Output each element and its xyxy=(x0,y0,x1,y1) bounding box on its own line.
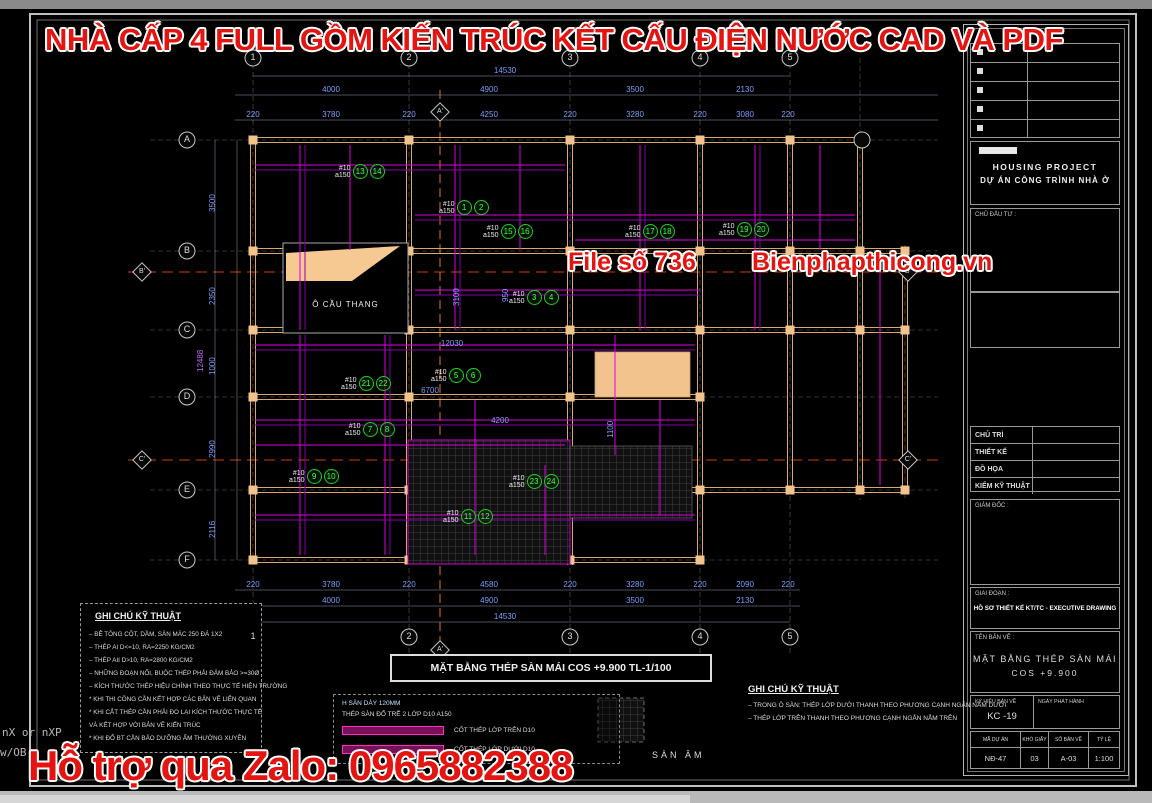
section-lines xyxy=(128,90,938,658)
drawing-title-box: MẶT BẰNG THÉP SÀN MÁI COS +9.900 TL-1/10… xyxy=(390,654,712,682)
rebar-spacing: a150 xyxy=(345,430,361,437)
rebar-callout: #10 a150 3 4 xyxy=(509,290,559,305)
dim-label: 12030 xyxy=(441,339,463,348)
dim-label: 3500 xyxy=(626,596,644,605)
dim-label: 6700 xyxy=(421,386,439,395)
footer-value: 1:100 xyxy=(1089,748,1119,768)
grid-row-bubble: F xyxy=(179,554,195,564)
dim-label: 4000 xyxy=(322,596,340,605)
dim-label: 220 xyxy=(693,580,706,589)
stair-opening-label: Ô CẦU THANG xyxy=(283,300,408,309)
bar-mark-number: 2 xyxy=(474,200,489,215)
section-bubble: A' xyxy=(432,646,448,653)
sheet-name-label: TÊN BẢN VẼ : xyxy=(975,635,1014,641)
rebar-spacing: a150 xyxy=(719,230,735,237)
dim-label: 4580 xyxy=(480,580,498,589)
revision-marker xyxy=(977,106,983,112)
dim-label: 220 xyxy=(563,110,576,119)
bar-mark-number: 13 xyxy=(353,164,368,179)
section-bubble: A' xyxy=(432,108,448,115)
footer-table: MÃ DỰ ÁN NĐ-47 KHỔ GIẤY 03 SỐ BẢN VẼ A-0… xyxy=(970,731,1120,769)
footer-value: 03 xyxy=(1021,748,1048,768)
rebar-size: #10 xyxy=(435,369,447,376)
bar-mark-number: 15 xyxy=(501,224,516,239)
bar-mark-number: 24 xyxy=(544,474,559,489)
director-label: GIÁM ĐỐC : xyxy=(975,503,1009,509)
bar-mark-number: 1 xyxy=(457,200,472,215)
dim-label: 3280 xyxy=(626,110,644,119)
rebar-callout: #10 a150 15 16 xyxy=(483,224,533,239)
rebar-callout: #10 a150 1 2 xyxy=(439,200,489,215)
note-line: * KHI CẮT THÉP CẦN PHẢI ĐO LẠI KÍCH THƯỚ… xyxy=(89,706,287,719)
rebar-callout: #10 a150 13 14 xyxy=(335,164,385,179)
dim-label: 3100 xyxy=(452,288,461,306)
slab-patch xyxy=(595,352,690,397)
footer-label: MÃ DỰ ÁN xyxy=(971,732,1020,748)
drawing-title: MẶT BẰNG THÉP SÀN MÁI COS +9.900 TL-1/10… xyxy=(430,662,671,674)
rebar-size: #10 xyxy=(513,291,525,298)
role-label: KIỂM KỸ THUẬT xyxy=(971,478,1033,494)
terminal-text: nX or nXP xyxy=(2,726,62,739)
rebar-callout: #10 a150 9 10 xyxy=(289,469,339,484)
grid-row-bubble: B xyxy=(179,245,195,255)
rebar-size: #10 xyxy=(345,377,357,384)
bar-mark-number: 12 xyxy=(478,509,493,524)
revision-marker xyxy=(977,68,983,74)
bar-mark-number: 7 xyxy=(363,422,378,437)
dim-label: 2350 xyxy=(208,287,217,305)
footer-label: TỶ LỆ xyxy=(1089,732,1119,748)
rebar-callout: #10 a150 17 18 xyxy=(625,224,675,239)
rebar-callout: #10 a150 21 22 xyxy=(341,376,391,391)
role-row: THIẾT KẾ xyxy=(971,444,1119,461)
top-window-strip xyxy=(0,0,1152,9)
footer-cell: KHỔ GIẤY 03 xyxy=(1021,732,1049,768)
bar-mark-number: 21 xyxy=(359,376,374,391)
rebar-size: #10 xyxy=(487,225,499,232)
rebar-callout: #10 a150 19 20 xyxy=(719,222,769,237)
dim-label: 3500 xyxy=(208,194,217,212)
footer-cell: SỐ BẢN VẼ A-03 xyxy=(1049,732,1089,768)
dimension-lines xyxy=(215,76,938,622)
stage-label: GIAI ĐOẠN : xyxy=(975,591,1009,597)
legend-swatch-top-layer xyxy=(342,726,444,735)
promo-top-banner: NHÀ CẤP 4 FULL GỒM KIẾN TRÚC KẾT CẤU ĐIỆ… xyxy=(45,22,1063,58)
legend-label: CỐT THÉP LỚP TRÊN D10 xyxy=(454,727,535,734)
dim-label: 2116 xyxy=(208,521,217,538)
revision-marker xyxy=(977,125,983,131)
rebar-size: #10 xyxy=(629,225,641,232)
stage-section: GIAI ĐOẠN : HỒ SƠ THIẾT KẾ KT/TC - EXECU… xyxy=(970,587,1120,629)
footer-label: SỐ BẢN VẼ xyxy=(1049,732,1088,748)
consultant-section xyxy=(970,292,1120,348)
grid-row-bubble: A xyxy=(179,134,195,144)
rebar-size: #10 xyxy=(723,223,735,230)
revision-row xyxy=(971,63,1119,82)
technical-notes-left: GHI CHÚ KỸ THUẬT – BÊ TÔNG CỘT, DẦM, SÀN… xyxy=(80,603,262,753)
bar-mark-number: 11 xyxy=(461,509,476,524)
director-section: GIÁM ĐỐC : xyxy=(970,499,1120,585)
promo-file-number: File số 736 xyxy=(568,248,696,277)
role-label: ĐỒ HỌA xyxy=(971,461,1033,477)
role-row: KIỂM KỸ THUẬT xyxy=(971,478,1119,494)
bar-mark-number: 3 xyxy=(527,290,542,305)
grid-col-bubble: 4 xyxy=(692,631,708,641)
section-bubble: C' xyxy=(134,456,150,463)
rebar-callout: #10 a150 11 12 xyxy=(443,509,493,524)
rebar-callout: #10 a150 5 6 xyxy=(431,368,481,383)
rebar-size: #10 xyxy=(293,470,305,477)
role-label: CHỦ TRÌ xyxy=(971,427,1033,443)
stair-opening xyxy=(283,243,408,333)
stage-value: HỒ SƠ THIẾT KẾ KT/TC - EXECUTIVE DRAWING xyxy=(971,605,1119,612)
dim-label: 4200 xyxy=(491,416,509,425)
bar-mark-number: 20 xyxy=(754,222,769,237)
bar-mark-number: 4 xyxy=(544,290,559,305)
notes-title: GHI CHÚ KỸ THUẬT xyxy=(748,684,1006,695)
dim-label: 220 xyxy=(693,110,706,119)
rebar-size: #10 xyxy=(513,475,525,482)
rebar-spacing: a150 xyxy=(431,376,447,383)
footer-cell: TỶ LỆ 1:100 xyxy=(1089,732,1119,768)
legend-line: THÉP SÀN ĐỔ TRỄ 2 LỚP D10 A150 xyxy=(342,711,452,718)
bar-mark-number: 17 xyxy=(643,224,658,239)
rebar-spacing: a150 xyxy=(443,517,459,524)
bar-mark-number: 23 xyxy=(527,474,542,489)
rebar-spacing: a150 xyxy=(439,208,455,215)
dim-label: 2130 xyxy=(736,85,754,94)
rebar-spacing: a150 xyxy=(625,232,641,239)
dim-label: 14530 xyxy=(494,66,516,75)
title-block: HOUSING PROJECT DỰ ÁN CÔNG TRÌNH NHÀ Ở C… xyxy=(963,24,1129,776)
bar-mark-number: 14 xyxy=(370,164,385,179)
revision-marker xyxy=(977,87,983,93)
dim-label: 3280 xyxy=(626,580,644,589)
bar-mark-number: 16 xyxy=(518,224,533,239)
project-name-en: HOUSING PROJECT xyxy=(971,162,1119,172)
dim-label: 12488 xyxy=(196,350,205,372)
dim-label: 1100 xyxy=(606,421,615,438)
dim-label: 2990 xyxy=(208,440,217,458)
dim-label: 220 xyxy=(402,580,415,589)
note-line: * KHI THI CÔNG CẦN KẾT HỢP CÁC BẢN VẼ LI… xyxy=(89,693,287,706)
rebar-spacing: a150 xyxy=(509,482,525,489)
footer-value: A-03 xyxy=(1049,748,1088,768)
cad-viewer-screenshot: 1 2 3 4 5 1 2 3 4 5 A B C D E F A' A' B'… xyxy=(0,0,1152,803)
dim-label: 220 xyxy=(781,110,794,119)
dim-label: 3780 xyxy=(322,580,340,589)
grid-col-bubble: 5 xyxy=(782,631,798,641)
grid-col-bubble: 2 xyxy=(401,631,417,641)
note-line: – THÉP AI D<=10, RA=2250 KG/CM2 xyxy=(89,641,287,654)
terminal-text: w/OB xyxy=(0,746,27,759)
bar-mark-number: 22 xyxy=(376,376,391,391)
sunken-slab-label: SÀN ÂM xyxy=(652,750,705,760)
footer-cell: MÃ DỰ ÁN NĐ-47 xyxy=(971,732,1021,768)
grid-row-bubble: C xyxy=(179,324,195,334)
issue-date-cell: NGÀY PHÁT HÀNH xyxy=(1034,696,1119,728)
note-line: – NHỮNG ĐOẠN NỐI, BUỘC THÉP PHẢI ĐẢM BẢO… xyxy=(89,667,287,680)
dim-label: 220 xyxy=(402,110,415,119)
dim-label: 2130 xyxy=(736,596,754,605)
project-name-vi: DỰ ÁN CÔNG TRÌNH NHÀ Ở xyxy=(971,176,1119,185)
footer-value: NĐ-47 xyxy=(971,748,1020,768)
dim-label: 220 xyxy=(781,580,794,589)
bar-mark-number: 18 xyxy=(660,224,675,239)
dim-label: 4900 xyxy=(480,596,498,605)
notes-title: GHI CHÚ KỸ THUẬT xyxy=(95,611,181,621)
rebar-spacing: a150 xyxy=(483,232,499,239)
section-bubble: B' xyxy=(134,268,150,275)
sheet-cos: COS +9.900 xyxy=(971,668,1119,678)
rebar-spacing: a150 xyxy=(335,172,351,179)
bar-mark-number: 5 xyxy=(449,368,464,383)
dim-label: 220 xyxy=(246,110,259,119)
note-line: VÀ KẾT HỢP VỚI BẢN VẼ KIẾN TRÚC xyxy=(89,719,287,732)
project-section: HOUSING PROJECT DỰ ÁN CÔNG TRÌNH NHÀ Ở xyxy=(970,141,1120,205)
dim-label: 1000 xyxy=(208,357,217,375)
role-label: THIẾT KẾ xyxy=(971,444,1033,460)
dim-label: 4250 xyxy=(480,110,498,119)
rebar-size: #10 xyxy=(447,510,459,517)
role-row: ĐỒ HỌA xyxy=(971,461,1119,478)
dim-label: 14530 xyxy=(494,612,516,621)
rebar-callout: #10 a150 7 8 xyxy=(345,422,395,437)
promo-website: Bienphapthicong.vn xyxy=(752,248,992,277)
bar-mark-number: 8 xyxy=(380,422,395,437)
footer-label: KHỔ GIẤY xyxy=(1021,732,1048,748)
technical-notes-right: GHI CHÚ KỸ THUẬT – TRONG Ô SÀN: THÉP LỚP… xyxy=(748,684,1006,725)
section-bubble: C' xyxy=(900,456,916,463)
client-section: CHỦ ĐẦU TƯ : xyxy=(970,208,1120,292)
legend-line: H SÀN DÀY 120MM xyxy=(342,700,400,707)
sheet-name: MẶT BẰNG THÉP SÀN MÁI xyxy=(971,654,1119,664)
rebar-size: #10 xyxy=(443,201,455,208)
bar-mark-number: 19 xyxy=(737,222,752,237)
rebar-spacing: a150 xyxy=(341,384,357,391)
grid-col-bubble: 3 xyxy=(562,631,578,641)
bar-mark-number: 6 xyxy=(466,368,481,383)
note-line: – KÍCH THƯỚC THÉP HIỆU CHỈNH THEO THỰC T… xyxy=(89,680,287,693)
bar-mark-number: 9 xyxy=(307,469,322,484)
dim-label: 2090 xyxy=(736,580,754,589)
rebar-spacing: a150 xyxy=(509,298,525,305)
rebar-size: #10 xyxy=(349,423,361,430)
dim-label: 220 xyxy=(246,580,259,589)
grid-row-bubble: E xyxy=(179,484,195,494)
client-label: CHỦ ĐẦU TƯ : xyxy=(975,212,1016,218)
grid-row-bubble: D xyxy=(179,391,195,401)
note-line: – THÉP LỚP TRÊN THANH THEO PHƯƠNG CẠNH N… xyxy=(748,712,1006,725)
revision-row xyxy=(971,82,1119,101)
issue-date-label: NGÀY PHÁT HÀNH xyxy=(1038,699,1084,705)
promo-zalo-contact: Hỗ trợ qua Zalo: 0965882388 xyxy=(28,742,572,790)
revision-row xyxy=(971,120,1119,138)
grid-col-bubble: 1 xyxy=(245,631,261,641)
dim-label: 3780 xyxy=(322,110,340,119)
note-line: – TRONG Ô SÀN: THÉP LỚP DƯỚI THANH THEO … xyxy=(748,699,1006,712)
dim-label: 220 xyxy=(563,580,576,589)
rebar-size: #10 xyxy=(339,165,351,172)
logo-mark xyxy=(979,147,1017,154)
rebar-spacing: a150 xyxy=(289,477,305,484)
revision-row xyxy=(971,101,1119,120)
dim-label: 3080 xyxy=(736,110,754,119)
note-line: – THÉP AII D>10, RA=2800 KG/CM2 xyxy=(89,654,287,667)
dim-label: 4900 xyxy=(480,85,498,94)
rebar-callout: #10 a150 23 24 xyxy=(509,474,559,489)
dim-label: 3500 xyxy=(626,85,644,94)
roles-table: CHỦ TRÌ THIẾT KẾ ĐỒ HỌA KIỂM KỸ THUẬT xyxy=(970,426,1120,492)
dim-label: 4000 xyxy=(322,85,340,94)
role-row: CHỦ TRÌ xyxy=(971,427,1119,444)
bar-mark-number: 10 xyxy=(324,469,339,484)
